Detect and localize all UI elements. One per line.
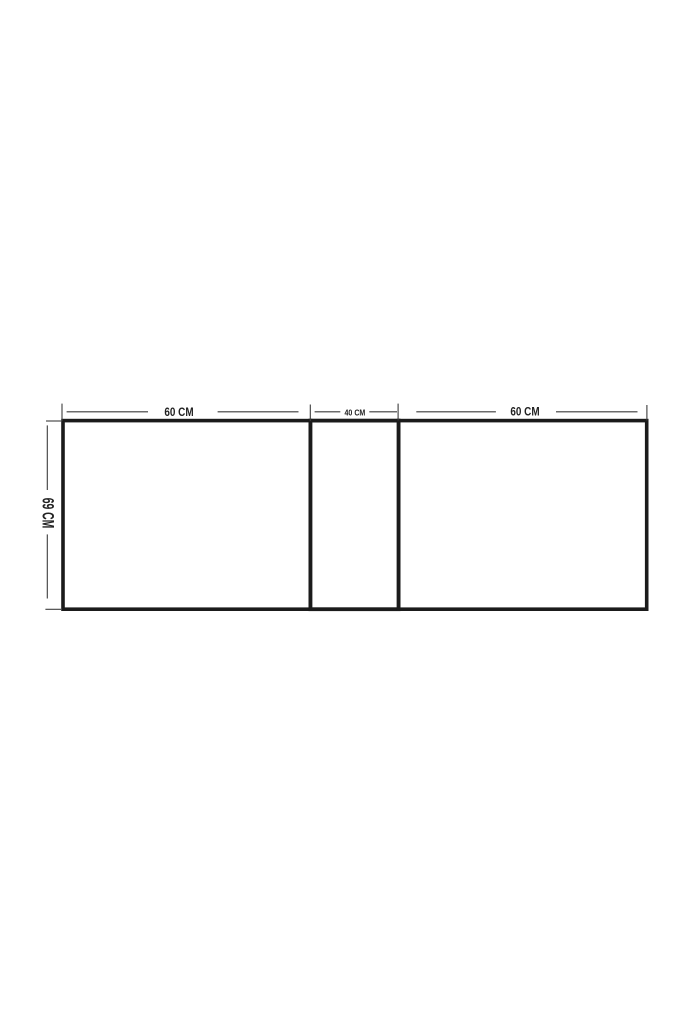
svg-text:69 CM: 69 CM (39, 498, 57, 529)
svg-text:40 CM: 40 CM (345, 408, 366, 418)
svg-text:60 CM: 60 CM (510, 404, 539, 418)
svg-text:60 CM: 60 CM (164, 405, 193, 419)
